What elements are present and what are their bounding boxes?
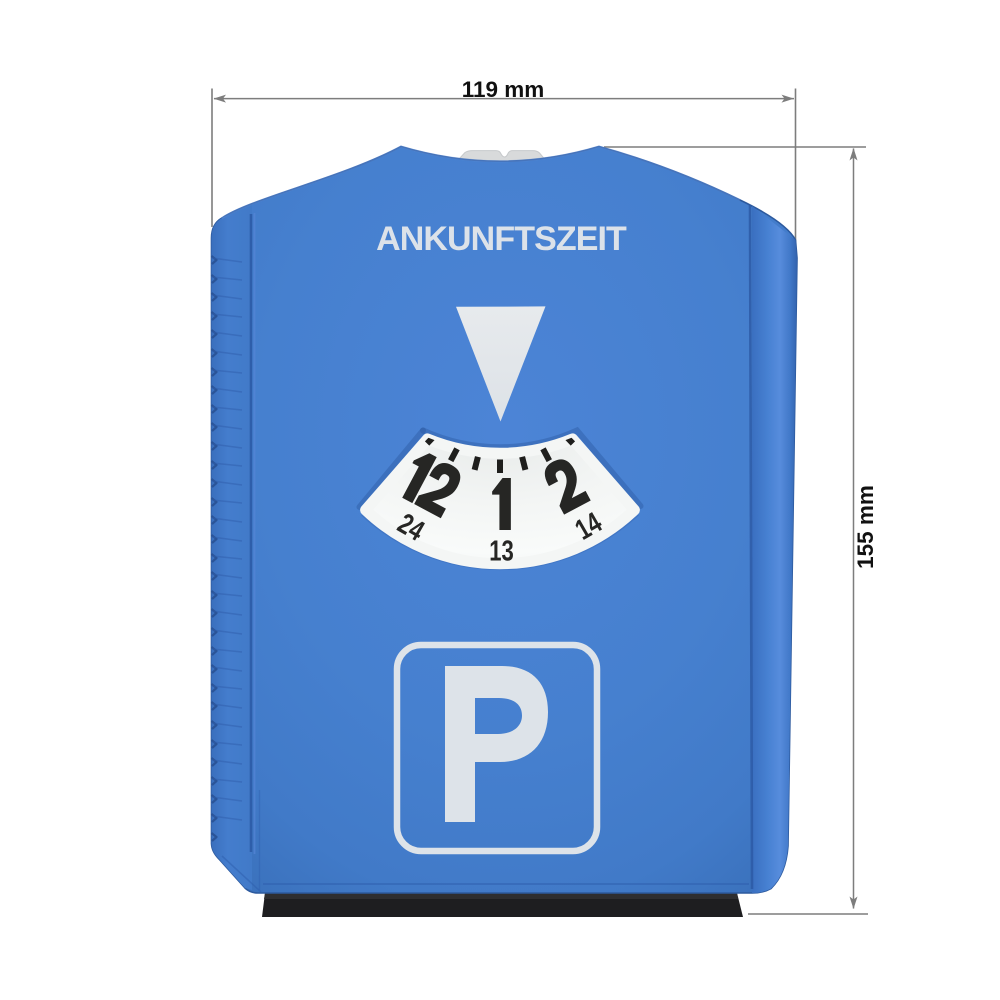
svg-text:ANKUNFTSZEIT: ANKUNFTSZEIT xyxy=(376,220,627,258)
svg-text:119 mm: 119 mm xyxy=(462,77,545,102)
svg-text:155 mm: 155 mm xyxy=(853,485,878,569)
svg-text:13: 13 xyxy=(489,536,514,568)
